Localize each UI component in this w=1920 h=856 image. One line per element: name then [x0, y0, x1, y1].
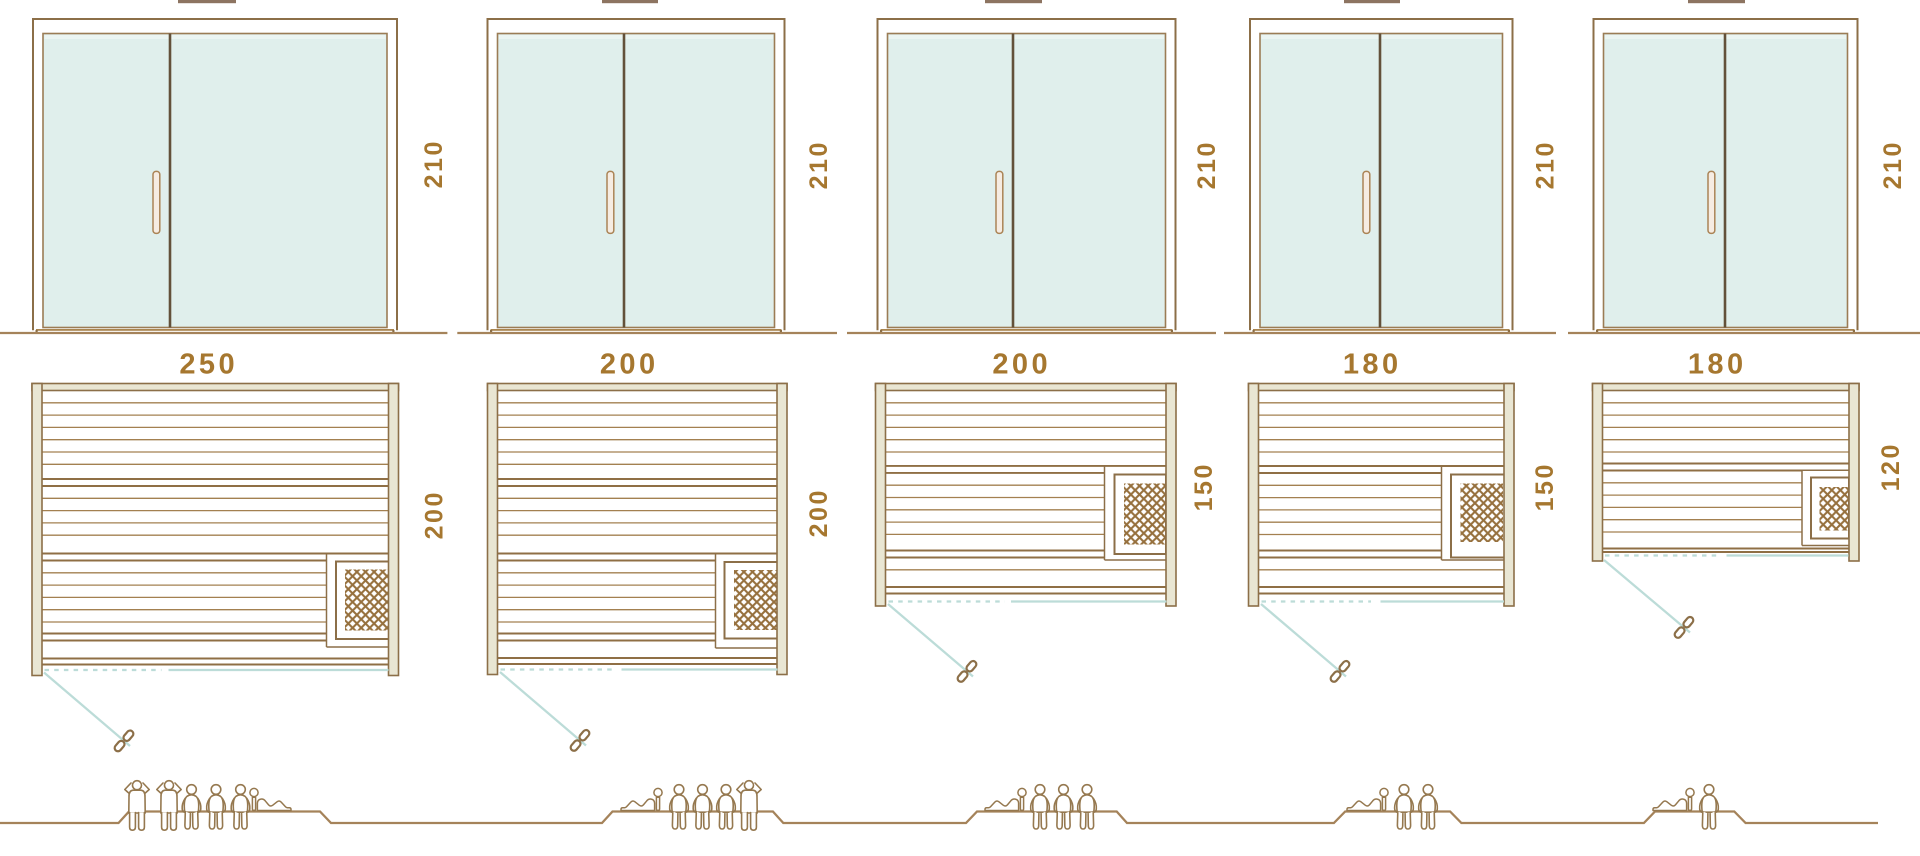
svg-text:180: 180: [1343, 349, 1402, 381]
svg-text:120: 120: [1877, 442, 1905, 491]
svg-text:180: 180: [1688, 349, 1747, 381]
svg-text:150: 150: [1531, 462, 1559, 511]
svg-text:200: 200: [421, 490, 449, 539]
svg-text:210: 210: [1532, 140, 1560, 189]
svg-text:210: 210: [420, 139, 448, 188]
svg-text:210: 210: [1193, 140, 1221, 189]
svg-text:150: 150: [1190, 462, 1218, 511]
svg-text:200: 200: [600, 349, 659, 381]
svg-text:210: 210: [805, 140, 833, 189]
svg-text:250: 250: [179, 349, 238, 381]
svg-text:210: 210: [1879, 140, 1907, 189]
svg-text:200: 200: [805, 488, 833, 537]
svg-text:200: 200: [992, 349, 1051, 381]
